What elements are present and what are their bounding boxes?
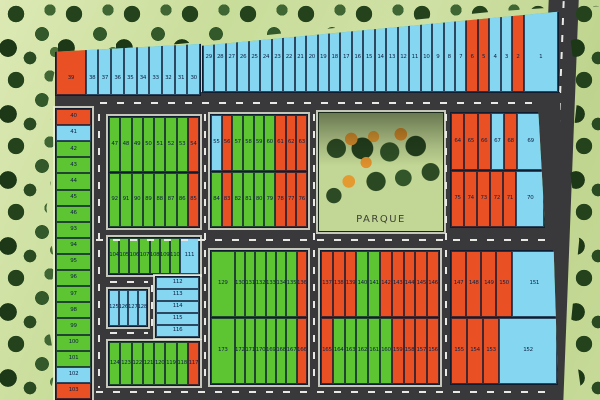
lot-number: 13 <box>389 55 395 61</box>
lot-144: 144 <box>404 251 416 317</box>
lot-number: 35 <box>127 76 133 82</box>
lot-number: 67 <box>494 139 500 145</box>
lot-number: 54 <box>190 142 196 148</box>
lot-number: 32 <box>165 76 171 82</box>
lot-92: 92 <box>109 173 120 228</box>
block-104-111: 104105106107108109110111 <box>108 237 200 275</box>
lot-50: 50 <box>143 117 154 172</box>
lot-number: 142 <box>381 281 391 287</box>
lot-number: 111 <box>185 253 195 259</box>
lot-number: 163 <box>346 348 356 354</box>
lot-number: 37 <box>102 76 108 82</box>
lot-number: 66 <box>481 139 487 145</box>
lot-45: 45 <box>56 190 91 206</box>
lot-99: 99 <box>56 318 91 334</box>
lot-number: 160 <box>381 348 391 354</box>
lot-120: 120 <box>154 342 165 385</box>
lot-number: 87 <box>168 197 174 203</box>
lot-number: 156 <box>428 348 438 354</box>
lot-173: 173 <box>211 318 235 384</box>
lot-49: 49 <box>132 117 143 172</box>
lot-94: 94 <box>56 238 91 254</box>
lot-number: 124 <box>110 361 120 367</box>
lot-number: 50 <box>145 142 151 148</box>
lot-65: 65 <box>464 113 477 170</box>
lot-number: 105 <box>119 253 129 259</box>
lot-42: 42 <box>56 141 91 157</box>
lot-number: 141 <box>369 281 379 287</box>
lot-number: 151 <box>530 281 540 287</box>
lot-46: 46 <box>56 206 91 222</box>
lot-169: 169 <box>266 318 276 384</box>
lot-number: 120 <box>155 361 165 367</box>
road-centerline <box>110 332 148 334</box>
lot-156: 156 <box>427 318 439 384</box>
lot-82: 82 <box>232 172 243 228</box>
lot-number: 36 <box>114 76 120 82</box>
lot-161: 161 <box>368 318 380 384</box>
lot-number: 15 <box>366 55 372 61</box>
lot-number: 97 <box>70 292 76 298</box>
lot-4: 4 <box>489 11 500 92</box>
lot-116: 116 <box>156 325 199 337</box>
lot-41: 41 <box>56 125 91 141</box>
lot-128: 128 <box>138 290 148 326</box>
lot-125: 125 <box>109 290 119 326</box>
lot-113: 113 <box>156 289 199 301</box>
lot-151: 151 <box>512 251 557 317</box>
road-centerline <box>96 391 554 393</box>
lot-103: 103 <box>56 383 91 399</box>
lot-number: 92 <box>111 197 117 203</box>
lot-170: 170 <box>255 318 265 384</box>
lot-number: 3 <box>505 55 508 61</box>
lot-number: 41 <box>70 130 76 136</box>
lot-number: 91 <box>123 197 129 203</box>
lot-73: 73 <box>477 171 490 228</box>
block-row: 646566676869 <box>451 113 544 171</box>
lot-number: 133 <box>266 281 276 287</box>
lot-number: 28 <box>217 55 223 61</box>
lot-98: 98 <box>56 302 91 318</box>
lot-80: 80 <box>254 172 265 228</box>
lot-146: 146 <box>427 251 439 317</box>
lot-number: 78 <box>277 197 283 203</box>
lot-136: 136 <box>297 251 307 317</box>
lot-91: 91 <box>120 173 131 228</box>
lot-5: 5 <box>478 11 489 92</box>
lot-141: 141 <box>368 251 380 317</box>
lot-number: 84 <box>213 197 219 203</box>
lot-number: 96 <box>70 275 76 281</box>
lot-number: 154 <box>470 348 480 354</box>
lot-number: 1 <box>539 55 542 61</box>
lot-90: 90 <box>132 173 143 228</box>
lot-149: 149 <box>481 251 496 317</box>
lot-number: 161 <box>369 348 379 354</box>
block-117-124: 124123122121120119118117 <box>108 341 200 386</box>
lot-number: 101 <box>69 356 79 362</box>
lot-70: 70 <box>516 171 544 228</box>
lot-54: 54 <box>188 117 199 172</box>
lot-number: 24 <box>263 55 269 61</box>
lot-number: 172 <box>235 348 245 354</box>
lot-138: 138 <box>333 251 345 317</box>
road-centerline <box>96 239 546 241</box>
block-row: 9291908988878685 <box>109 173 199 228</box>
lot-number: 153 <box>486 348 496 354</box>
lot-number: 112 <box>173 280 183 286</box>
lot-number: 45 <box>70 195 76 201</box>
lot-30: 30 <box>187 41 200 95</box>
lot-51: 51 <box>154 117 165 172</box>
block-147-155: 147148149150151 155154153152 <box>450 250 558 385</box>
block-55-63-76-84: 555657585960616263 848382818079787776 <box>210 114 308 228</box>
lot-number: 113 <box>173 292 183 298</box>
lot-59: 59 <box>254 115 265 171</box>
lot-36: 36 <box>111 41 124 95</box>
lot-number: 103 <box>69 388 79 394</box>
lot-112: 112 <box>156 277 199 289</box>
lot-number: 125 <box>109 305 119 311</box>
lot-number: 100 <box>69 340 79 346</box>
park-area: PARQUE <box>318 112 444 232</box>
lot-number: 170 <box>256 348 266 354</box>
lot-number: 22 <box>286 55 292 61</box>
lot-number: 116 <box>173 328 183 334</box>
site-plan-map: 39383736353433323130 2928272625242322212… <box>0 0 600 400</box>
lot-148: 148 <box>466 251 481 317</box>
lot-150: 150 <box>496 251 511 317</box>
lot-129: 129 <box>211 251 235 317</box>
lot-number: 49 <box>134 142 140 148</box>
lot-number: 146 <box>428 281 438 287</box>
lot-124: 124 <box>109 342 120 385</box>
lot-number: 57 <box>234 140 240 146</box>
lot-154: 154 <box>467 318 483 384</box>
lot-number: 138 <box>334 281 344 287</box>
lot-number: 135 <box>287 281 297 287</box>
lot-145: 145 <box>415 251 427 317</box>
lot-164: 164 <box>333 318 345 384</box>
block-row: 173172171170169168167166 <box>211 318 307 384</box>
lot-number: 76 <box>299 197 305 203</box>
lot-number: 149 <box>484 281 494 287</box>
lot-77: 77 <box>286 172 297 228</box>
lot-number: 83 <box>224 197 230 203</box>
lot-number: 148 <box>469 281 479 287</box>
lot-32: 32 <box>162 41 175 95</box>
lot-72: 72 <box>490 171 503 228</box>
lot-104: 104 <box>109 238 119 274</box>
lot-7: 7 <box>455 11 466 92</box>
lot-number: 77 <box>288 197 294 203</box>
lot-number: 123 <box>121 361 131 367</box>
lot-number: 27 <box>228 55 234 61</box>
lot-number: 162 <box>357 348 367 354</box>
lot-number: 99 <box>70 324 76 330</box>
lot-44: 44 <box>56 173 91 189</box>
lot-number: 136 <box>297 281 307 287</box>
lot-number: 121 <box>144 361 154 367</box>
lot-number: 164 <box>334 348 344 354</box>
block-row: 147148149150151 <box>451 251 557 318</box>
lot-135: 135 <box>286 251 296 317</box>
lot-107: 107 <box>139 238 149 274</box>
lot-9: 9 <box>432 11 443 92</box>
block-row: 165164163162161160159158157156 <box>321 318 439 384</box>
lot-number: 65 <box>468 139 474 145</box>
block-64-69-70-75: 646566676869 757473727170 <box>450 112 545 228</box>
lot-102: 102 <box>56 367 91 383</box>
lot-number: 165 <box>322 348 332 354</box>
lot-number: 86 <box>179 197 185 203</box>
lot-130: 130 <box>235 251 245 317</box>
lot-number: 60 <box>266 140 272 146</box>
lot-number: 152 <box>523 348 533 354</box>
lot-132: 132 <box>255 251 265 317</box>
block-137-146-156-165: 137138139140141142143144145146 165164163… <box>320 250 440 385</box>
lot-number: 110 <box>170 253 180 259</box>
lot-number: 119 <box>166 361 176 367</box>
lot-number: 102 <box>69 372 79 378</box>
block-row: 848382818079787776 <box>211 172 307 228</box>
lot-100: 100 <box>56 335 91 351</box>
lot-number: 88 <box>156 197 162 203</box>
lot-40: 40 <box>56 109 91 125</box>
lot-68: 68 <box>504 113 517 170</box>
lot-71: 71 <box>503 171 516 228</box>
lot-number: 127 <box>128 305 138 311</box>
lot-number: 107 <box>140 253 150 259</box>
lot-number: 82 <box>234 197 240 203</box>
lot-93: 93 <box>56 222 91 238</box>
lot-number: 12 <box>400 55 406 61</box>
lot-number: 46 <box>70 211 76 217</box>
lot-number: 5 <box>482 55 485 61</box>
park-label: PARQUE <box>319 214 443 225</box>
block-row: 757473727170 <box>451 171 544 228</box>
lot-57: 57 <box>232 115 243 171</box>
lot-75: 75 <box>451 171 464 228</box>
lot-number: 157 <box>416 348 426 354</box>
lot-66: 66 <box>478 113 491 170</box>
lot-101: 101 <box>56 351 91 367</box>
lot-number: 108 <box>150 253 160 259</box>
road-centerline <box>100 102 540 104</box>
lot-number: 81 <box>245 197 251 203</box>
lot-number: 55 <box>213 140 219 146</box>
lot-number: 53 <box>179 142 185 148</box>
lot-number: 47 <box>111 142 117 148</box>
lot-number: 48 <box>123 142 129 148</box>
lot-number: 168 <box>276 348 286 354</box>
lot-number: 159 <box>393 348 403 354</box>
lot-79: 79 <box>264 172 275 228</box>
lot-number: 61 <box>277 140 283 146</box>
lot-number: 56 <box>224 140 230 146</box>
lot-number: 128 <box>137 305 147 311</box>
lot-140: 140 <box>356 251 368 317</box>
lot-number: 143 <box>393 281 403 287</box>
lot-number: 74 <box>467 196 473 202</box>
lot-number: 64 <box>454 139 460 145</box>
lot-number: 75 <box>454 196 460 202</box>
lot-number: 115 <box>173 316 183 322</box>
lot-11: 11 <box>409 11 420 92</box>
lot-number: 8 <box>448 55 451 61</box>
lot-158: 158 <box>404 318 416 384</box>
lot-87: 87 <box>165 173 176 228</box>
lot-number: 43 <box>70 163 76 169</box>
lot-number: 42 <box>70 147 76 153</box>
lot-number: 129 <box>218 281 228 287</box>
lot-number: 34 <box>140 76 146 82</box>
lot-number: 19 <box>320 55 326 61</box>
lot-134: 134 <box>276 251 286 317</box>
lot-number: 6 <box>471 55 474 61</box>
lot-84: 84 <box>211 172 222 228</box>
lot-139: 139 <box>345 251 357 317</box>
lot-number: 11 <box>412 55 418 61</box>
lot-number: 31 <box>178 76 184 82</box>
lot-119: 119 <box>165 342 176 385</box>
road-centerline <box>204 114 206 384</box>
lot-number: 68 <box>507 139 513 145</box>
lot-60: 60 <box>264 115 275 171</box>
lot-83: 83 <box>222 172 233 228</box>
lot-number: 26 <box>240 55 246 61</box>
block-112-116: 112113114115116 <box>155 276 200 338</box>
lot-143: 143 <box>392 251 404 317</box>
lot-number: 18 <box>332 55 338 61</box>
lot-162: 162 <box>356 318 368 384</box>
lot-number: 126 <box>118 305 128 311</box>
lot-number: 71 <box>507 196 513 202</box>
road-centerline <box>151 285 153 333</box>
lot-61: 61 <box>275 115 286 171</box>
lot-52: 52 <box>165 117 176 172</box>
lot-88: 88 <box>154 173 165 228</box>
lot-number: 44 <box>70 179 76 185</box>
lot-33: 33 <box>149 41 162 95</box>
lot-number: 29 <box>206 55 212 61</box>
lot-96: 96 <box>56 270 91 286</box>
lot-35: 35 <box>124 41 137 95</box>
lot-8: 8 <box>444 11 455 92</box>
lot-117: 117 <box>188 342 199 385</box>
lot-172: 172 <box>235 318 245 384</box>
lot-number: 90 <box>134 197 140 203</box>
lot-number: 122 <box>132 361 142 367</box>
lot-97: 97 <box>56 286 91 302</box>
lot-111: 111 <box>180 238 199 274</box>
lot-number: 38 <box>89 76 95 82</box>
lot-number: 166 <box>297 348 307 354</box>
block-row: 555657585960616263 <box>211 115 307 172</box>
lot-127: 127 <box>128 290 138 326</box>
lot-2: 2 <box>512 11 523 92</box>
lot-95: 95 <box>56 254 91 270</box>
lot-number: 144 <box>405 281 415 287</box>
lot-number: 118 <box>177 361 187 367</box>
lot-number: 137 <box>322 281 332 287</box>
block-129-136-166-173: 129130131132133134135136 173172171170169… <box>210 250 308 385</box>
lot-number: 173 <box>218 348 228 354</box>
lot-118: 118 <box>177 342 188 385</box>
lot-43: 43 <box>56 157 91 173</box>
lot-number: 70 <box>527 196 533 202</box>
lot-number: 85 <box>190 197 196 203</box>
lot-147: 147 <box>451 251 466 317</box>
lot-67: 67 <box>491 113 504 170</box>
lot-number: 134 <box>276 281 286 287</box>
lot-number: 21 <box>297 55 303 61</box>
lot-171: 171 <box>245 318 255 384</box>
lot-86: 86 <box>177 173 188 228</box>
lot-1: 1 <box>524 11 558 92</box>
lot-48: 48 <box>120 117 131 172</box>
lot-number: 30 <box>190 76 196 82</box>
lot-number: 62 <box>288 140 294 146</box>
lot-number: 98 <box>70 308 76 314</box>
lot-number: 59 <box>256 140 262 146</box>
lot-number: 93 <box>70 227 76 233</box>
road-centerline <box>445 114 447 382</box>
lot-number: 72 <box>494 196 500 202</box>
lot-34: 34 <box>137 41 150 95</box>
block-row: 129130131132133134135136 <box>211 251 307 318</box>
lot-number: 158 <box>405 348 415 354</box>
lot-number: 80 <box>256 197 262 203</box>
lot-10: 10 <box>421 11 432 92</box>
lot-number: 51 <box>156 142 162 148</box>
lot-153: 153 <box>483 318 499 384</box>
lot-53: 53 <box>177 117 188 172</box>
lot-114: 114 <box>156 301 199 313</box>
lot-165: 165 <box>321 318 333 384</box>
lot-62: 62 <box>286 115 297 171</box>
lot-55: 55 <box>211 115 222 171</box>
lot-number: 33 <box>152 76 158 82</box>
lot-47: 47 <box>109 117 120 172</box>
lot-133: 133 <box>266 251 276 317</box>
lot-157: 157 <box>415 318 427 384</box>
lot-number: 167 <box>287 348 297 354</box>
lot-number: 145 <box>416 281 426 287</box>
lot-number: 58 <box>245 140 251 146</box>
lot-number: 69 <box>527 139 533 145</box>
lot-159: 159 <box>392 318 404 384</box>
road-centerline <box>110 281 148 283</box>
road-centerline <box>98 114 100 388</box>
lot-110: 110 <box>170 238 180 274</box>
block-row: 155154153152 <box>451 318 557 384</box>
lot-108: 108 <box>150 238 160 274</box>
tree-band-left <box>0 0 58 400</box>
lot-number: 10 <box>423 55 429 61</box>
lot-13: 13 <box>386 11 397 92</box>
lot-number: 155 <box>454 348 464 354</box>
lot-number: 150 <box>499 281 509 287</box>
lot-121: 121 <box>143 342 154 385</box>
lot-number: 95 <box>70 259 76 265</box>
block-125-128: 125126127128 <box>108 289 148 327</box>
lot-131: 131 <box>245 251 255 317</box>
lot-number: 20 <box>309 55 315 61</box>
lot-number: 79 <box>266 197 272 203</box>
lot-168: 168 <box>276 318 286 384</box>
